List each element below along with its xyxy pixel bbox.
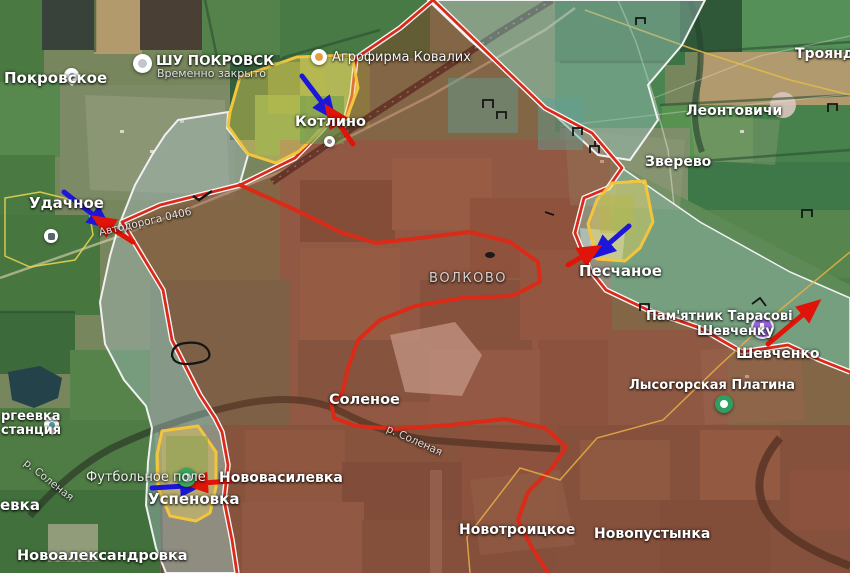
label-evka-partial: евка (0, 497, 40, 514)
label-leontovichi: Леонтовичи (686, 104, 782, 119)
label-agrofirma: Агрофирма Ковалих (332, 51, 471, 65)
label-shevchenko: Шевченко (736, 347, 820, 362)
label-volkovo: ВОЛКОВО (429, 272, 507, 286)
label-shu-pokrovsk-status: Временно закрыто (157, 68, 266, 80)
agrofirma-pin-icon[interactable] (311, 49, 327, 65)
label-peschanoe: Песчаное (579, 263, 662, 280)
label-pamyatnik-line2: Шевченку (697, 325, 774, 339)
label-novovasilevka: Нововасилевка (219, 471, 343, 486)
kotlino-station-icon[interactable] (324, 136, 335, 147)
label-troyanda: Троянда (795, 47, 850, 62)
label-pokrovskoe: Покровское (4, 70, 107, 87)
label-pamyatnik-line1: Пам'ятник Тарасові (646, 310, 793, 324)
shu-pokrovsk-pin-icon[interactable] (133, 54, 152, 73)
label-novoaleksandrovka: Новоалександровка (17, 549, 188, 565)
label-futbolnoe-pole: Футбольное поле (86, 471, 206, 485)
label-novopustynka: Новопустынка (594, 527, 710, 542)
label-lysogorskaya: Лысогорская Платина (629, 379, 795, 393)
label-zverevo: Зверево (645, 155, 711, 170)
park-poi-icon[interactable] (715, 395, 733, 413)
label-novotroitskoe: Новотроицкое (459, 523, 575, 538)
map-canvas (0, 0, 850, 573)
label-uspenovka: Успеновка (148, 491, 239, 508)
label-kotlino: Котлино (295, 115, 366, 131)
label-sergeevka-line2: станция (1, 424, 61, 438)
arrow-uspenovka-blue (152, 486, 185, 488)
label-udachnoe: Удачное (29, 195, 104, 212)
label-solenoe: Соленое (329, 393, 400, 409)
udachnoe-poi-icon[interactable] (44, 229, 58, 243)
satellite-war-map[interactable]: Покровское ШУ ПОКРОВСК Временно закрыто … (0, 0, 850, 573)
